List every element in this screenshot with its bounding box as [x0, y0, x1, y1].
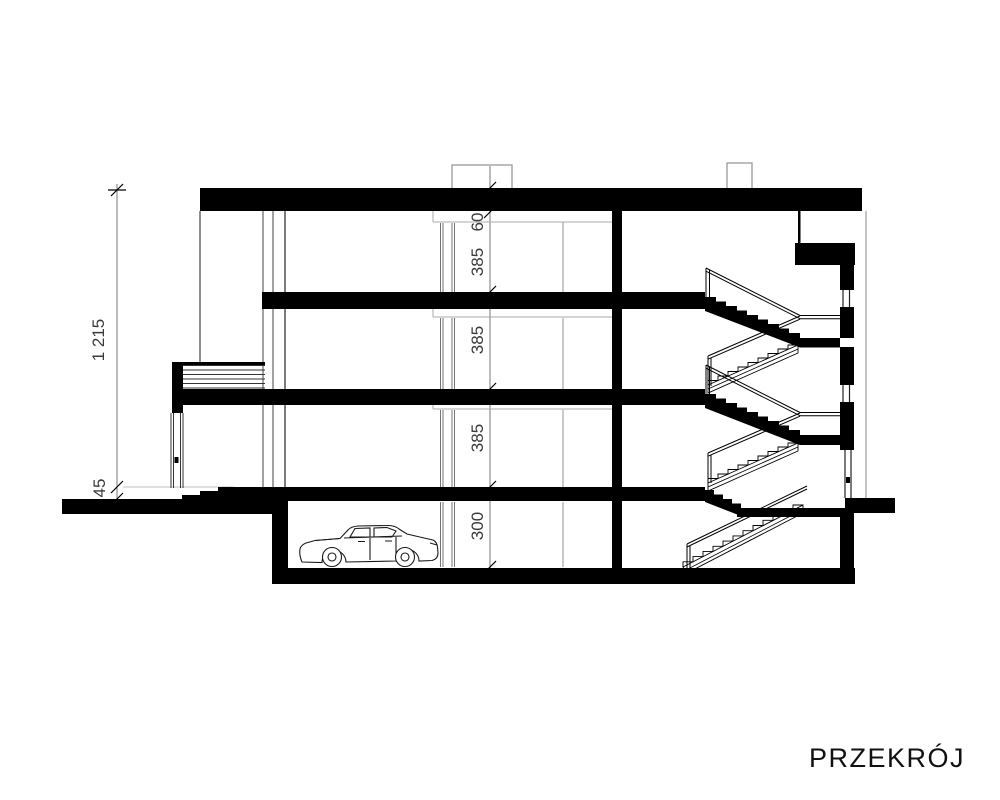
top-canopy-block [795, 243, 855, 265]
porch-door-handle [175, 457, 179, 463]
ceiling-lines [433, 211, 612, 409]
chimney-right [727, 163, 752, 189]
chain-dim-storey-2: 385 [468, 326, 487, 354]
left-total-dimension: 1 215 [89, 319, 108, 362]
chain-dim-garage: 300 [468, 512, 487, 540]
ground-slab [288, 487, 705, 501]
car [300, 526, 438, 567]
car-rear-wheel [323, 548, 342, 567]
stair-window-upper [843, 290, 850, 307]
garage-right-wall [840, 513, 854, 568]
entrance-door [845, 450, 851, 498]
porch-pier [172, 362, 183, 413]
car-windows [350, 528, 396, 538]
right-wall-segment [840, 347, 854, 385]
stairwell-wall [612, 211, 622, 568]
stair-window-lower [843, 385, 850, 402]
top-recessed-wall-line [798, 211, 801, 243]
right-wall-segment [840, 265, 854, 290]
entrance-door-handle [846, 477, 850, 483]
floor-slab-1 [172, 389, 705, 405]
right-wall-segment [840, 402, 854, 450]
drawing-title: PRZEKRÓJ [809, 742, 965, 773]
building-section-drawing: 1 215 45 60 385 385 385 300 PRZEKRÓJ [0, 0, 1000, 800]
garage-floor-slab [272, 568, 855, 584]
chain-dim-storey-3: 385 [468, 248, 487, 276]
chain-dim-storey-1: 385 [468, 424, 487, 452]
porch-door [171, 413, 183, 488]
stair-flight-cut-entry [705, 490, 741, 516]
car-front-wheel [396, 548, 415, 567]
right-wall-segment [840, 307, 854, 338]
roof-slab [200, 188, 862, 211]
chain-dim-roof: 60 [468, 213, 487, 232]
porch-louvers [182, 366, 265, 389]
left-step-dimension: 45 [90, 479, 109, 498]
floor-slab-2 [262, 292, 705, 309]
grade-and-garage-left-wall [62, 487, 288, 570]
chimney-left [452, 165, 512, 189]
entry-landing-slab [737, 508, 853, 517]
dimension-ticks [108, 182, 496, 573]
stair-elevation-flights [683, 345, 803, 573]
porch-louver-cap [182, 362, 265, 365]
car-body [300, 526, 438, 563]
section-drawing-sheet: 1 215 45 60 385 385 385 300 PRZEKRÓJ [0, 0, 1000, 800]
